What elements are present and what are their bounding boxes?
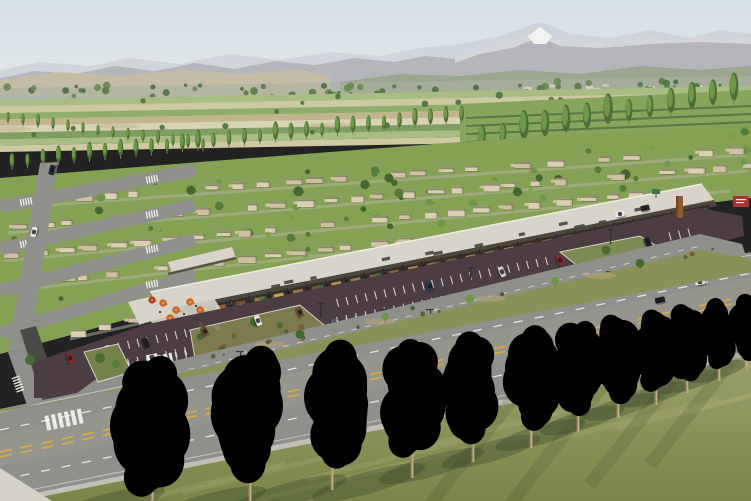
yard-tree xyxy=(153,225,160,232)
yard-tree xyxy=(741,128,749,136)
house-shade xyxy=(563,160,565,167)
sapling-tree xyxy=(296,330,305,339)
umbrella-pole-top xyxy=(189,301,191,303)
house-shade xyxy=(70,220,72,226)
house-parapet xyxy=(581,196,597,198)
poplar-highlight xyxy=(141,130,144,138)
poplar-highlight xyxy=(180,134,183,146)
house-wing xyxy=(130,241,134,244)
umbrella-pole-top xyxy=(162,302,164,304)
house-shade xyxy=(674,169,676,174)
yard-tree xyxy=(360,180,369,189)
house-shade xyxy=(571,199,573,206)
house-wing xyxy=(235,231,239,234)
house-parapet xyxy=(111,242,127,244)
house-wing xyxy=(684,169,688,172)
tree-canopy-highlight xyxy=(737,297,745,306)
poplar-highlight xyxy=(541,111,547,130)
umbrella-pole-top xyxy=(169,317,171,319)
umbrella-pole-top xyxy=(151,299,153,301)
field-tree xyxy=(274,109,279,114)
yard-tree xyxy=(539,195,546,202)
poplar-highlight xyxy=(604,95,611,117)
yard-tree xyxy=(528,188,533,193)
house-shade xyxy=(386,216,388,222)
house-shade xyxy=(461,187,463,194)
street-light-head xyxy=(244,351,246,353)
poplar-highlight xyxy=(51,118,53,126)
house-shade xyxy=(345,175,347,181)
field-tree xyxy=(222,123,228,129)
yard-tree xyxy=(688,155,693,160)
yard-tree xyxy=(360,206,366,212)
sapling-tree xyxy=(466,295,474,303)
sign-text-line xyxy=(736,199,746,200)
house-wing xyxy=(107,243,111,246)
house-parapet xyxy=(688,167,705,169)
house-shade xyxy=(255,256,257,263)
poplar-highlight xyxy=(201,139,203,147)
parking-light-arm xyxy=(318,303,324,304)
horizon-tree xyxy=(3,83,11,91)
house-wing xyxy=(499,205,503,208)
verge-patch xyxy=(584,273,616,279)
house-shade xyxy=(703,167,705,174)
verge-shrub xyxy=(301,338,304,341)
yard-tree xyxy=(305,247,310,252)
house-parapet xyxy=(318,247,333,249)
house-parapet xyxy=(659,169,675,171)
horizon-tree xyxy=(574,83,581,90)
tree-canopy-highlight xyxy=(327,345,342,362)
yard-tree xyxy=(394,188,403,197)
house-shade xyxy=(322,177,324,183)
poplar-highlight xyxy=(149,139,152,150)
house-shade xyxy=(242,183,244,189)
house-wing xyxy=(162,238,166,241)
house-parapet xyxy=(238,256,256,258)
field-tree xyxy=(310,130,315,135)
wayfinding-sign-green xyxy=(652,189,660,194)
house-parapet xyxy=(61,220,71,222)
poplar-highlight xyxy=(667,89,672,107)
house-shade xyxy=(743,147,745,154)
house-shade xyxy=(489,207,491,213)
house-parapet xyxy=(269,202,286,204)
house-wing xyxy=(607,175,611,178)
house-shade xyxy=(405,171,407,177)
horizon-tree xyxy=(417,85,422,90)
house-parapet xyxy=(425,211,437,213)
verge-patch xyxy=(364,319,396,325)
house-parapet xyxy=(13,224,27,226)
verge-shrub xyxy=(222,347,225,350)
house-parapet xyxy=(713,165,726,167)
house-parapet xyxy=(699,149,713,151)
house-shade xyxy=(53,222,55,228)
horizon-tree xyxy=(240,87,244,91)
house-shade xyxy=(452,168,454,173)
house-shade xyxy=(301,179,303,185)
yard-tree xyxy=(426,199,432,205)
yard-tree xyxy=(344,217,348,221)
tree-canopy-highlight xyxy=(707,301,716,311)
tree-canopy-highlight xyxy=(247,351,262,368)
yard-tree xyxy=(585,148,591,154)
verge-shrub xyxy=(690,251,695,256)
house-wing xyxy=(524,203,528,206)
house-parapet xyxy=(403,191,415,193)
house-parapet xyxy=(106,271,119,273)
house-shade xyxy=(46,249,48,255)
poplar-highlight xyxy=(171,135,173,143)
umbrella-pole-top xyxy=(175,309,177,311)
house-wing xyxy=(265,204,269,207)
house-parapet xyxy=(623,155,640,157)
monument-sign-red xyxy=(733,196,749,207)
house-shade xyxy=(250,229,252,236)
house-shade xyxy=(712,149,714,156)
yard-tree xyxy=(619,185,626,192)
horizon-tree xyxy=(150,84,155,89)
house-shade xyxy=(137,190,139,197)
house-parapet xyxy=(448,209,465,211)
house-wing xyxy=(695,151,699,154)
house-wing xyxy=(551,180,555,183)
sapling-tree xyxy=(636,259,645,268)
verge-shrub xyxy=(500,292,504,296)
horizon-tree xyxy=(638,82,644,88)
poplar-highlight xyxy=(258,130,261,139)
house-shade xyxy=(443,189,445,194)
sapling-tree xyxy=(551,277,559,285)
verge-shrub xyxy=(420,311,425,316)
poplar-highlight xyxy=(87,143,91,155)
tree-canopy-highlight xyxy=(524,330,536,344)
house-parapet xyxy=(443,168,454,170)
house-wing xyxy=(293,201,297,204)
house-parapet xyxy=(306,177,323,179)
sapling-tree xyxy=(381,313,388,320)
house-wing xyxy=(56,248,60,251)
house-parapet xyxy=(351,195,364,197)
verge-shrub xyxy=(222,353,224,355)
patio-table xyxy=(159,311,161,313)
horizon-tree xyxy=(518,84,522,88)
poplar-highlight xyxy=(21,114,23,122)
median-island-tree xyxy=(95,353,105,363)
field-tree xyxy=(335,94,341,100)
verge-shrub xyxy=(211,354,216,359)
tree-canopy-highlight xyxy=(126,367,144,387)
street-light-arm xyxy=(236,351,245,352)
poplar-highlight xyxy=(36,114,39,123)
parking-light-arm xyxy=(608,229,614,230)
house-parapet xyxy=(484,184,501,186)
house-parapet xyxy=(265,227,276,229)
house-shade xyxy=(208,208,210,215)
house-shade xyxy=(538,201,540,208)
house-wing xyxy=(501,184,505,187)
yard-tree xyxy=(95,206,103,214)
field-patch xyxy=(96,124,139,129)
house-wing xyxy=(725,149,729,152)
field-patch xyxy=(308,123,355,128)
house-wing xyxy=(553,200,557,203)
house-shade xyxy=(285,202,287,208)
poplar-highlight xyxy=(366,116,369,127)
yard-tree xyxy=(438,219,446,227)
house-shade xyxy=(126,242,128,248)
house-shade xyxy=(274,227,276,233)
house-parapet xyxy=(505,182,516,184)
house-wing xyxy=(9,225,13,228)
verge-shrub xyxy=(266,340,270,344)
horizon-tree xyxy=(321,83,327,89)
house-parapet xyxy=(233,183,244,185)
poplar-highlight xyxy=(335,117,339,130)
house-shade xyxy=(529,163,531,169)
horizon-tree xyxy=(553,78,561,86)
house-parapet xyxy=(265,253,282,255)
house-shade xyxy=(595,196,597,201)
house-parapet xyxy=(134,239,151,241)
verge-shrub xyxy=(440,307,443,310)
house-parapet xyxy=(82,244,97,246)
verge-shrub xyxy=(438,310,441,313)
house-shade xyxy=(609,157,611,162)
house-wing xyxy=(229,184,233,187)
house-shade xyxy=(117,271,119,278)
sign-text-line xyxy=(736,202,744,203)
poplar-highlight xyxy=(66,120,68,128)
yard-tree xyxy=(305,169,310,174)
tree-canopy-highlight xyxy=(558,327,572,342)
scene-canvas xyxy=(0,0,751,501)
house-wing xyxy=(124,319,128,322)
house-parapet xyxy=(158,265,168,267)
house-parapet xyxy=(528,201,540,203)
field-tree xyxy=(71,126,76,131)
house-shade xyxy=(313,200,315,207)
yard-tree xyxy=(286,234,294,242)
parking-light-pole xyxy=(610,230,611,244)
yard-tree xyxy=(371,166,379,174)
house-shade xyxy=(477,166,479,171)
house-parapet xyxy=(547,160,564,162)
house-shade xyxy=(565,178,567,185)
poplar-highlight xyxy=(26,154,29,163)
house-wing xyxy=(577,198,581,201)
poplar-highlight xyxy=(97,125,99,132)
yard-tree xyxy=(265,232,271,238)
patio-table xyxy=(195,305,197,307)
yard-tree xyxy=(305,232,310,237)
yard-tree xyxy=(384,174,393,183)
verge-shrub xyxy=(356,325,360,329)
house-parapet xyxy=(372,216,388,218)
house-shade xyxy=(464,209,466,216)
field-tree xyxy=(31,132,36,137)
poplar-highlight xyxy=(289,124,292,135)
poplar-highlight xyxy=(479,125,484,142)
poplar-highlight xyxy=(583,104,589,123)
horizon-tree xyxy=(163,89,170,96)
poplar-highlight xyxy=(459,106,462,117)
yard-tree xyxy=(741,159,747,165)
house-parapet xyxy=(399,214,411,216)
poplar-highlight xyxy=(103,144,106,155)
island-shrub xyxy=(298,324,304,330)
house-parapet xyxy=(197,208,209,210)
tree-canopy-highlight xyxy=(146,361,161,378)
poplar-highlight xyxy=(647,96,652,112)
field-patch xyxy=(57,117,97,122)
house-shade xyxy=(409,214,411,219)
yard-tree xyxy=(633,176,638,181)
field-tree xyxy=(160,125,165,130)
entry-pylon-shade xyxy=(676,196,678,218)
horizon-tree xyxy=(473,85,479,91)
poplar-highlight xyxy=(186,135,189,144)
poplar-highlight xyxy=(626,100,631,116)
poplar-highlight xyxy=(688,84,694,103)
distant-building xyxy=(523,87,532,90)
patio-table xyxy=(183,313,185,315)
yard-tree xyxy=(728,131,735,138)
poplar-highlight xyxy=(72,148,75,158)
yard-tree xyxy=(370,209,378,217)
verge-shrub xyxy=(683,255,687,259)
house-shade xyxy=(203,234,205,239)
verge-patch xyxy=(474,296,506,302)
parking-light-pole xyxy=(320,304,321,318)
house-shade xyxy=(18,252,20,258)
poplar-highlight xyxy=(562,106,568,126)
house-shade xyxy=(281,253,283,258)
tree-canopy-highlight xyxy=(399,343,412,357)
house-parapet xyxy=(557,199,572,201)
tree-canopy-highlight xyxy=(457,336,470,351)
poplar-highlight xyxy=(397,113,400,124)
house-shade xyxy=(725,165,727,172)
horizon-tree xyxy=(673,79,678,84)
horizon-tree xyxy=(184,84,187,87)
horizon-tree xyxy=(347,82,355,90)
poplar-highlight xyxy=(81,123,83,131)
yard-tree xyxy=(59,296,64,301)
house-shade xyxy=(305,250,307,255)
tree-canopy-highlight xyxy=(576,324,586,335)
house-parapet xyxy=(391,171,406,173)
house-wing xyxy=(511,164,515,167)
house-shade xyxy=(74,247,76,253)
island-shrub xyxy=(214,324,220,330)
horizon-tree xyxy=(198,83,202,87)
house-parapet xyxy=(239,229,251,231)
horizon-tree xyxy=(94,84,101,91)
yard-tree xyxy=(492,177,496,181)
poplar-highlight xyxy=(428,109,431,120)
house-wing xyxy=(439,169,443,172)
poplar-highlight xyxy=(156,131,159,140)
horizon-tree xyxy=(392,84,396,88)
horizon-tree xyxy=(192,86,197,91)
house-parapet xyxy=(206,185,219,187)
house-shade xyxy=(382,193,384,198)
house-shade xyxy=(116,192,118,199)
house-shade xyxy=(332,247,334,252)
horizon-tree xyxy=(261,84,266,89)
field-tree xyxy=(422,101,429,108)
house-wing xyxy=(286,251,290,254)
house-shade xyxy=(336,197,338,202)
house-shade xyxy=(96,244,98,250)
horizon-tree xyxy=(357,84,363,90)
poplar-highlight xyxy=(500,124,505,140)
house-shade xyxy=(256,204,258,211)
house-shade xyxy=(425,170,427,175)
house-shade xyxy=(623,173,625,180)
house-shade xyxy=(639,155,641,160)
yard-tree xyxy=(664,161,670,167)
house-shade xyxy=(217,185,219,190)
poplar-highlight xyxy=(304,122,307,133)
yard-tree xyxy=(644,143,653,152)
poplar-highlight xyxy=(211,133,214,143)
poplar-highlight xyxy=(242,129,245,140)
house-parapet xyxy=(257,181,270,183)
street-light-head xyxy=(434,309,436,311)
house-shade xyxy=(514,182,516,187)
house-shade xyxy=(436,211,438,218)
poplar-highlight xyxy=(709,81,714,99)
horizon-tree xyxy=(81,88,86,93)
parking-light-arm xyxy=(468,267,474,268)
poplar-highlight xyxy=(10,154,13,165)
house-shade xyxy=(167,265,169,271)
yard-tree xyxy=(387,223,393,229)
house-parapet xyxy=(325,197,338,199)
house-shade xyxy=(229,231,231,236)
tree-canopy-highlight xyxy=(672,307,681,317)
sign-post xyxy=(656,194,657,198)
house-shade xyxy=(414,191,416,198)
poplar-highlight xyxy=(195,130,199,143)
poplar-highlight xyxy=(413,109,417,121)
verge-shrub xyxy=(410,306,415,311)
poplar-highlight xyxy=(41,150,44,161)
house-parapet xyxy=(321,221,335,223)
yard-tree xyxy=(724,143,730,149)
poplar-highlight xyxy=(320,123,323,132)
horizon-tree xyxy=(62,87,69,94)
yard-tree xyxy=(293,186,303,196)
yard-tree xyxy=(186,186,195,195)
house-parapet xyxy=(729,147,744,149)
poplar-highlight xyxy=(351,117,354,129)
horizon-tree xyxy=(719,84,722,87)
horizon-tree xyxy=(243,90,248,95)
house-shade xyxy=(85,330,87,337)
poplar-highlight xyxy=(520,112,526,133)
island-shrub xyxy=(199,322,203,326)
house-parapet xyxy=(410,170,426,172)
house-shade xyxy=(499,184,501,191)
yard-tree xyxy=(284,212,291,219)
poplar-highlight xyxy=(6,112,8,120)
distant-building xyxy=(602,84,609,86)
